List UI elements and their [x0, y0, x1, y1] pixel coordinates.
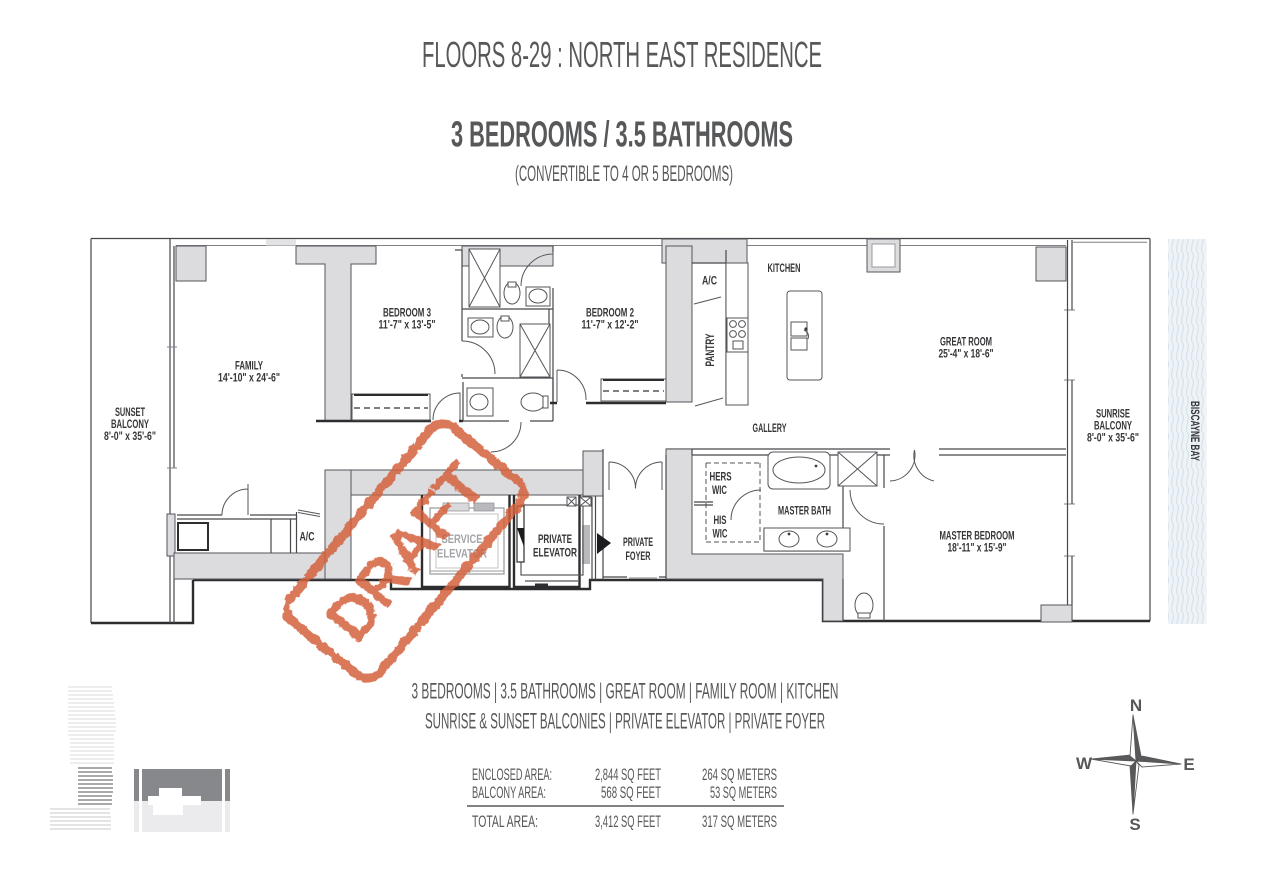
svg-text:PRIVATE: PRIVATE — [623, 537, 653, 549]
svg-text:PRIVATE: PRIVATE — [538, 534, 572, 546]
svg-text:S: S — [1129, 815, 1140, 834]
svg-text:SUNRISE & SUNSET BALCONIES | P: SUNRISE & SUNSET BALCONIES | PRIVATE ELE… — [425, 709, 825, 734]
svg-text:8'-0" x 35'-6": 8'-0" x 35'-6" — [1087, 433, 1139, 445]
svg-text:HIS: HIS — [714, 515, 727, 527]
svg-text:GALLERY: GALLERY — [753, 423, 787, 435]
svg-text:568 SQ FEET: 568 SQ FEET — [601, 784, 661, 802]
svg-text:W: W — [1076, 754, 1093, 773]
svg-text:FOYER: FOYER — [626, 551, 651, 563]
svg-text:2,844 SQ FEET: 2,844 SQ FEET — [595, 766, 661, 784]
svg-text:BEDROOM 2: BEDROOM 2 — [586, 308, 634, 320]
svg-text:ENCLOSED AREA:: ENCLOSED AREA: — [472, 766, 552, 784]
svg-text:3,412 SQ FEET: 3,412 SQ FEET — [595, 813, 661, 831]
svg-text:HERS: HERS — [710, 472, 732, 484]
svg-text:11'-7" x 12'-2": 11'-7" x 12'-2" — [582, 320, 639, 332]
svg-text:TOTAL AREA:: TOTAL AREA: — [472, 813, 538, 831]
svg-text:317 SQ METERS: 317 SQ METERS — [702, 813, 777, 831]
svg-text:A/C: A/C — [300, 532, 315, 544]
svg-text:11'-7" x 13'-5": 11'-7" x 13'-5" — [379, 320, 436, 332]
svg-text:25'-4" x 18'-6": 25'-4" x 18'-6" — [939, 349, 994, 361]
svg-text:14'-10" x 24'-6": 14'-10" x 24'-6" — [218, 373, 280, 385]
svg-text:BALCONY: BALCONY — [1094, 421, 1132, 433]
svg-text:BEDROOM 3: BEDROOM 3 — [383, 308, 431, 320]
svg-text:WIC: WIC — [712, 485, 727, 497]
svg-text:FLOORS 8-29 : NORTH EAST RESID: FLOORS 8-29 : NORTH EAST RESIDENCE — [422, 34, 822, 75]
svg-text:53 SQ METERS: 53 SQ METERS — [710, 784, 777, 802]
svg-text:8'-0" x 35'-6": 8'-0" x 35'-6" — [104, 431, 156, 443]
svg-text:N: N — [1130, 696, 1142, 715]
svg-text:A/C: A/C — [702, 276, 717, 288]
svg-text:FAMILY: FAMILY — [235, 361, 263, 373]
svg-text:264 SQ METERS: 264 SQ METERS — [702, 766, 777, 784]
svg-text:BALCONY AREA:: BALCONY AREA: — [472, 784, 546, 802]
svg-text:18'-11" x 15'-9": 18'-11" x 15'-9" — [948, 543, 1007, 555]
svg-text:SUNSET: SUNSET — [115, 407, 145, 419]
svg-text:MASTER BEDROOM: MASTER BEDROOM — [940, 531, 1015, 543]
svg-text:MASTER BATH: MASTER BATH — [778, 506, 831, 518]
svg-text:BISCAYNE BAY: BISCAYNE BAY — [1188, 401, 1200, 461]
svg-text:BALCONY: BALCONY — [111, 419, 149, 431]
svg-text:3 BEDROOMS | 3.5 BATHROOMS | G: 3 BEDROOMS | 3.5 BATHROOMS | GREAT ROOM … — [412, 679, 839, 704]
svg-text:3 BEDROOMS / 3.5 BATHROOMS: 3 BEDROOMS / 3.5 BATHROOMS — [451, 114, 793, 155]
svg-text:ELEVATOR: ELEVATOR — [533, 548, 578, 560]
svg-text:E: E — [1183, 755, 1194, 774]
svg-text:WIC: WIC — [713, 529, 728, 541]
svg-text:GREAT ROOM: GREAT ROOM — [940, 337, 992, 349]
svg-text:PANTRY: PANTRY — [705, 333, 717, 366]
svg-text:(CONVERTIBLE TO 4 OR 5 BEDROOM: (CONVERTIBLE TO 4 OR 5 BEDROOMS) — [515, 161, 733, 186]
svg-text:SUNRISE: SUNRISE — [1096, 409, 1130, 421]
svg-text:KITCHEN: KITCHEN — [768, 263, 801, 275]
